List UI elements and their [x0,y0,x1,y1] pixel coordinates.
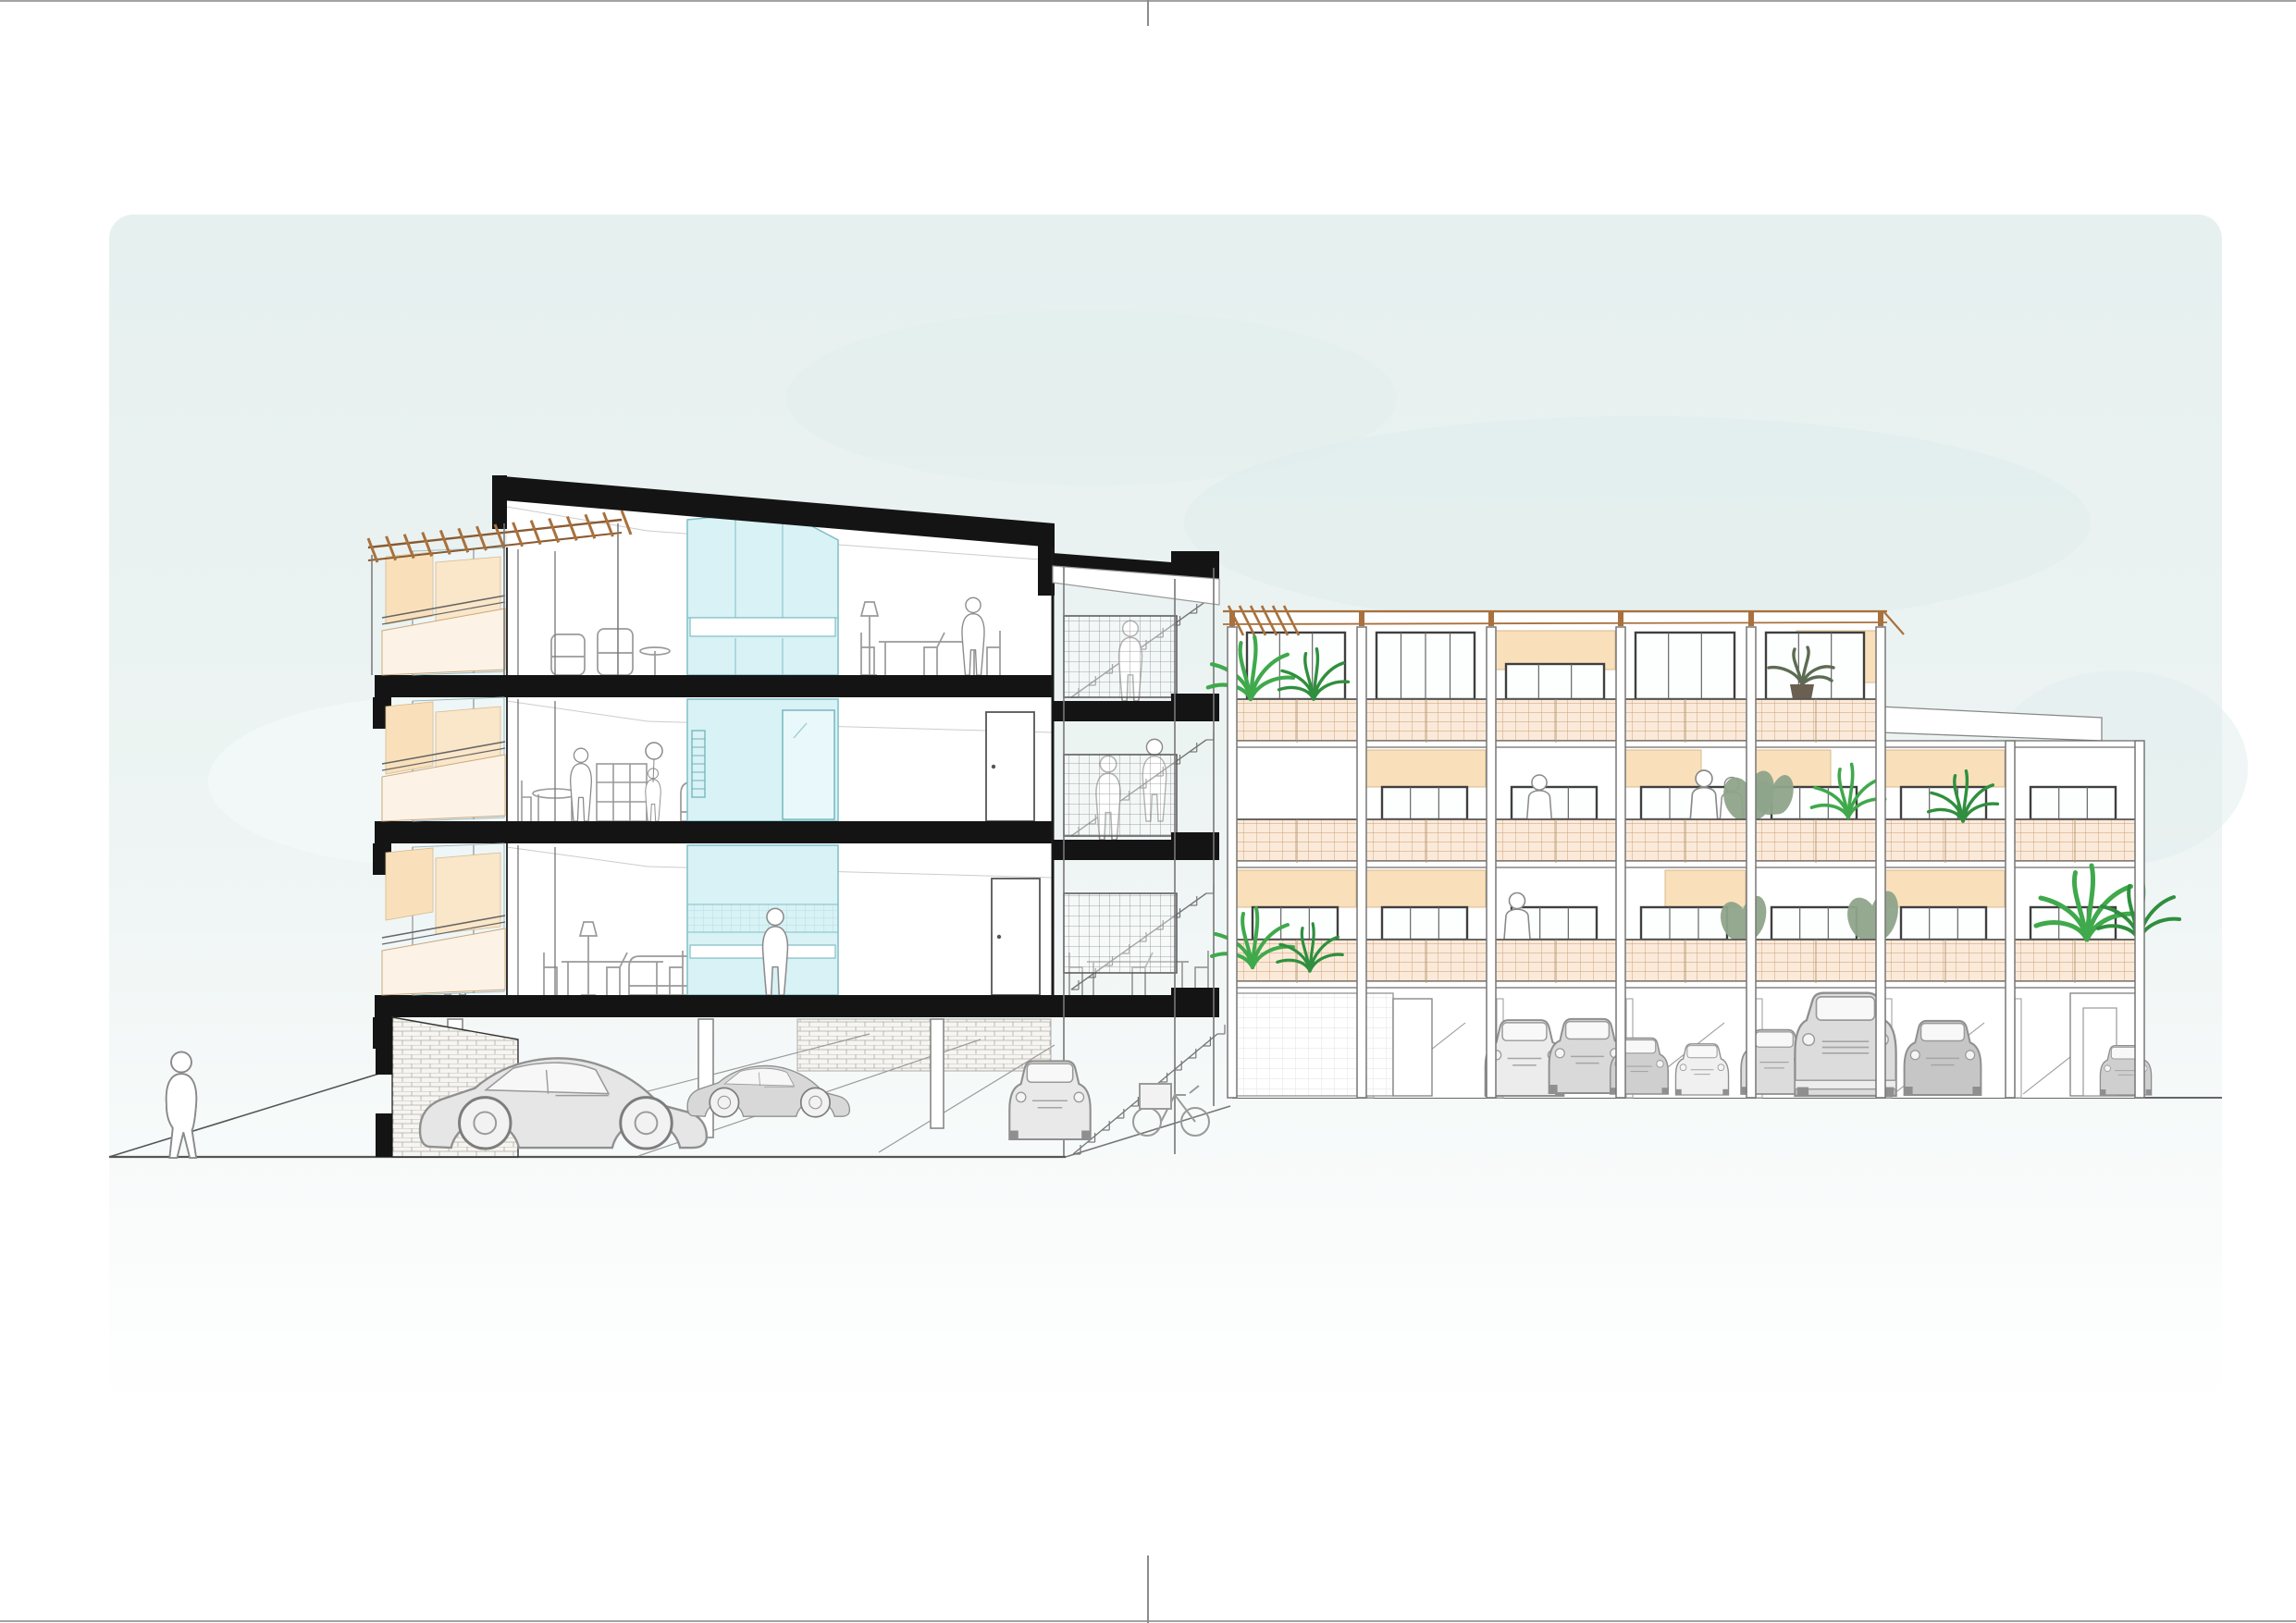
scene-root [0,0,2296,1623]
service-core [687,510,838,995]
cloud [1184,416,2091,629]
drawing-page [0,0,2296,1623]
balloon [646,743,662,759]
parapets [1232,699,2140,988]
architectural-drawing [0,0,2296,1623]
